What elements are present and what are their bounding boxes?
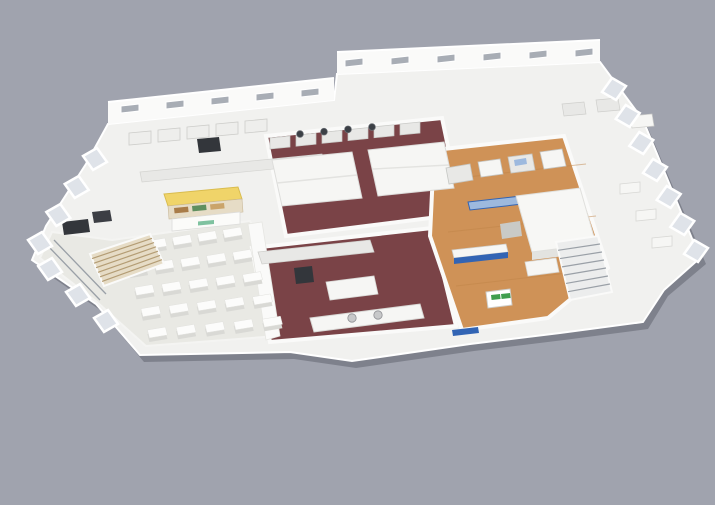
rear-window	[166, 100, 184, 109]
rear-window	[345, 58, 363, 67]
rear-window	[301, 88, 319, 97]
rack-tray	[501, 293, 511, 299]
fridge-unit	[216, 122, 238, 136]
rear-window	[575, 48, 593, 57]
range-unit	[270, 136, 290, 149]
wok	[345, 126, 352, 133]
round-sink	[374, 311, 382, 319]
fridge-unit	[158, 128, 180, 142]
machine	[540, 149, 566, 169]
rear-window	[256, 92, 274, 101]
lab-bench	[652, 236, 672, 248]
wok	[321, 128, 328, 135]
range-unit	[400, 122, 420, 135]
fridge-unit	[245, 119, 267, 133]
facility-render	[0, 0, 715, 505]
rear-window	[529, 50, 547, 59]
fridge-unit	[187, 125, 209, 139]
mixer-unit	[500, 221, 522, 239]
office-desk	[562, 102, 586, 116]
lab-bench	[620, 182, 640, 194]
rear-window	[211, 96, 229, 105]
round-sink	[348, 314, 356, 322]
wok	[369, 124, 376, 131]
rear-kitchen-dark-fridge	[197, 137, 221, 153]
lab-bench	[636, 209, 656, 221]
machine	[478, 159, 503, 177]
floorplan-svg	[0, 0, 715, 505]
wok	[297, 131, 304, 138]
copier-machine	[92, 210, 112, 223]
upright-fridge	[294, 266, 314, 284]
rear-window	[121, 104, 139, 113]
rear-window	[483, 52, 501, 61]
service-counter	[164, 187, 243, 231]
rack-tray	[491, 294, 501, 300]
rear-window	[391, 56, 409, 65]
rear-window	[437, 54, 455, 63]
range-unit	[374, 125, 394, 138]
fridge-unit	[129, 131, 151, 145]
machine	[446, 164, 473, 184]
